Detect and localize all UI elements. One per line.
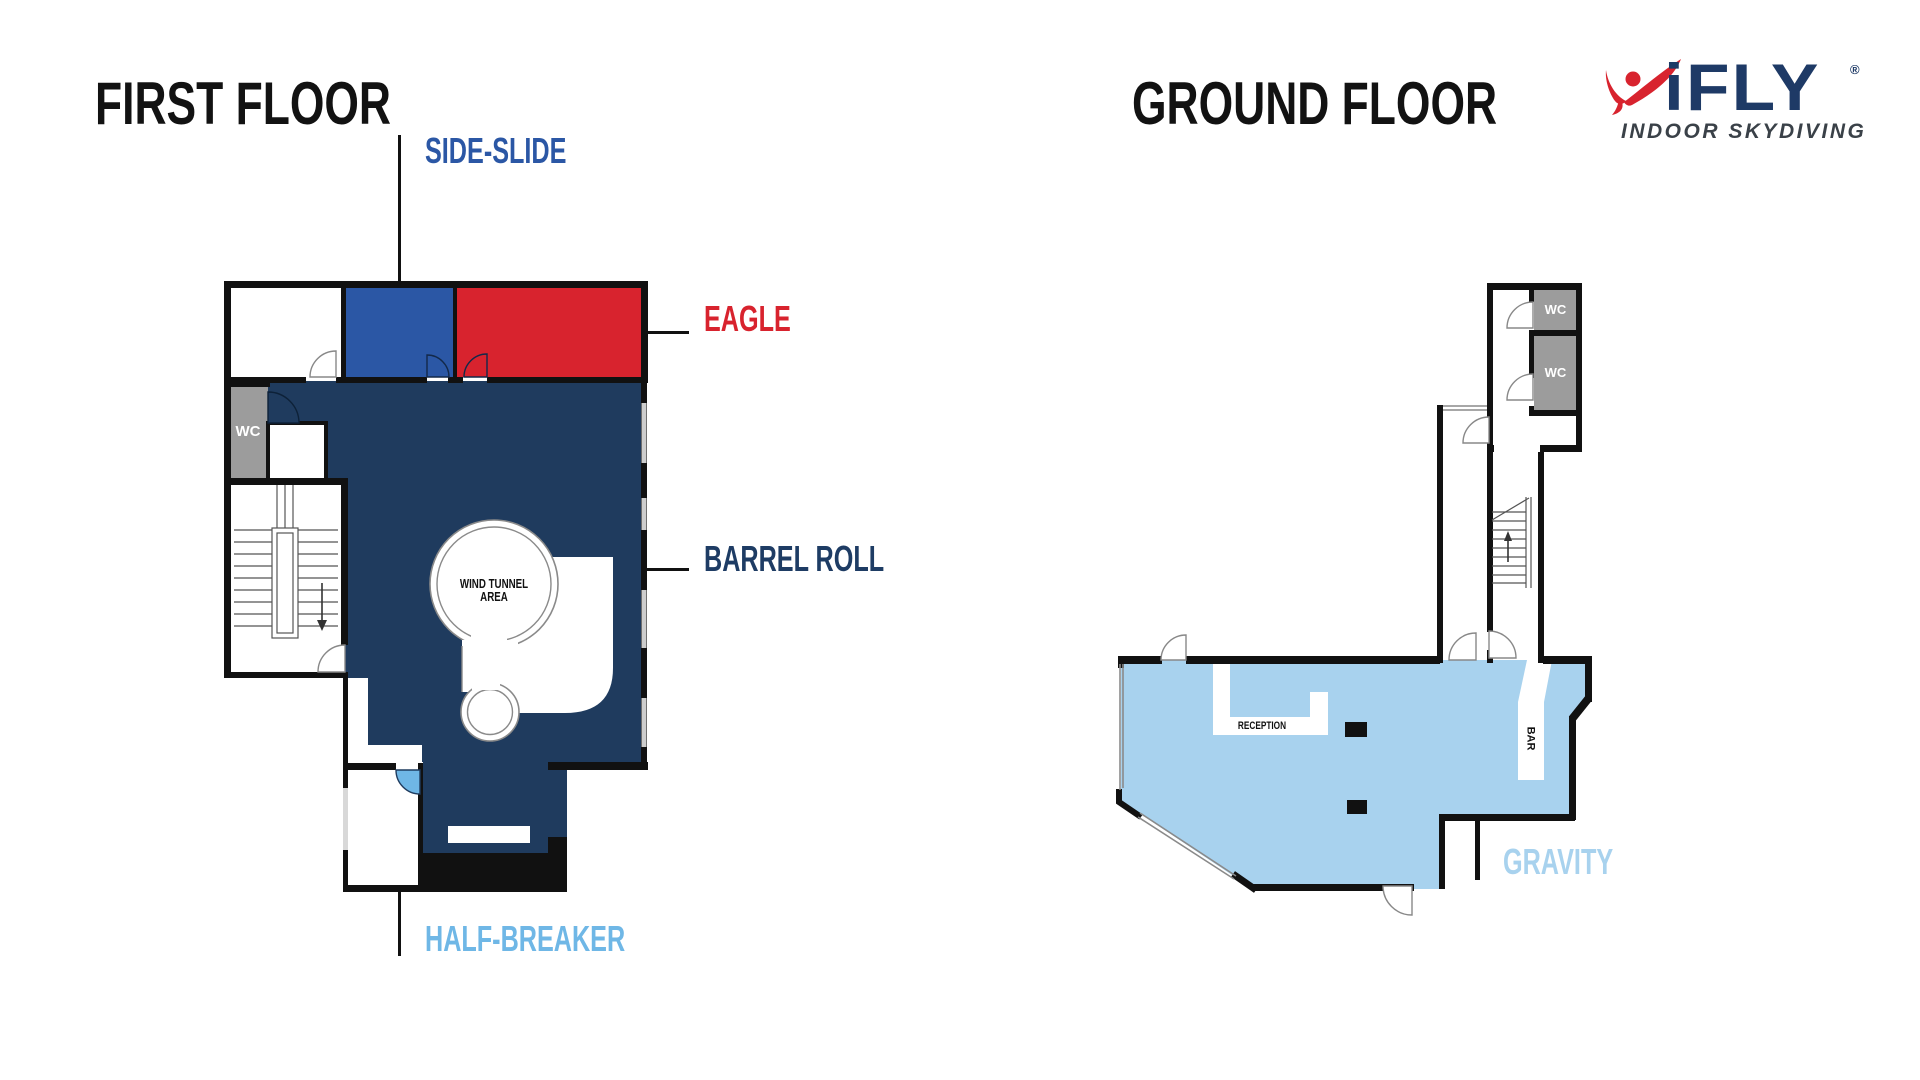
reception-label: RECEPTION <box>1226 721 1298 732</box>
floorplan-page: FIRST FLOOR GROUND FLOOR SIDE-SLIDE EAGL… <box>0 0 1920 1080</box>
door-arc <box>310 351 336 377</box>
wc-label-first-floor: WC <box>232 424 264 439</box>
eagle-pointer-line <box>647 331 689 334</box>
callout-barrel-roll: BARREL ROLL <box>704 541 884 577</box>
door-arc <box>1383 886 1412 915</box>
tunnel-small-circle <box>461 683 519 741</box>
counter-first-floor <box>448 826 530 843</box>
wc-label-ground-upper: WC <box>1534 303 1577 316</box>
side-slide-pointer-line <box>398 135 401 281</box>
ground-floor-plan <box>1118 283 1592 915</box>
barrel-roll-pointer-line <box>647 568 689 571</box>
bar-label: BAR <box>1525 721 1536 757</box>
ground-floor-staircase <box>1492 497 1531 588</box>
callout-eagle: EAGLE <box>704 301 791 337</box>
store-room <box>268 423 326 480</box>
door-arc <box>1489 631 1516 658</box>
door-arc <box>1507 374 1533 400</box>
callout-gravity: GRAVITY <box>1503 844 1613 880</box>
callout-side-slide: SIDE-SLIDE <box>425 133 566 169</box>
registered-trademark-symbol: ® <box>1850 62 1860 77</box>
door-arc <box>1507 302 1533 328</box>
door-arc <box>1463 417 1489 443</box>
door-arc <box>1161 635 1186 660</box>
first-floor-title: FIRST FLOOR <box>95 74 391 134</box>
ifly-logo-wordmark: iFLY <box>1664 54 1821 120</box>
floorplan-graphics <box>0 0 1920 1080</box>
pillar <box>1345 722 1367 737</box>
door-arc <box>318 645 345 672</box>
ifly-logo-tagline: INDOOR SKYDIVING <box>1621 121 1866 142</box>
wc-label-ground-lower: WC <box>1534 366 1577 379</box>
pillar <box>1347 800 1367 814</box>
ground-floor-title: GROUND FLOOR <box>1132 74 1497 134</box>
half-breaker-pointer-line <box>398 892 401 956</box>
wind-tunnel-label: WIND TUNNEL AREA <box>448 577 541 603</box>
callout-half-breaker: HALF-BREAKER <box>425 921 625 957</box>
door-arc <box>396 770 420 794</box>
door-arc <box>1449 633 1476 660</box>
first-floor-plan <box>224 135 689 956</box>
first-floor-staircase <box>234 485 338 638</box>
